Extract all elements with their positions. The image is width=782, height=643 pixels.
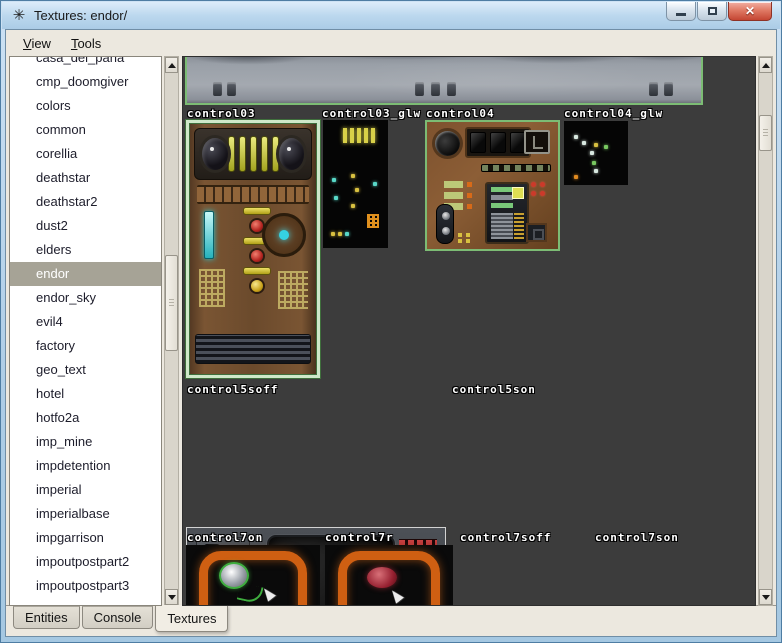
scroll-down-button[interactable]	[759, 589, 772, 605]
folder-item-factory[interactable]: factory	[10, 334, 161, 358]
indicator-bars	[228, 136, 279, 172]
glow-dot	[574, 175, 578, 179]
texture-label: control03	[187, 107, 256, 120]
menu-view[interactable]: View	[14, 33, 60, 54]
folder-item-evil4[interactable]: evil4	[10, 310, 161, 334]
tab-textures[interactable]: Textures	[155, 605, 228, 632]
texture-label: control5son	[452, 383, 536, 396]
port-capsule	[436, 204, 454, 244]
glow-dot	[332, 178, 336, 182]
texture-label: control7son	[595, 531, 679, 544]
arrow-up-icon	[762, 63, 770, 68]
rivet-mark	[447, 82, 456, 96]
arrow-down-icon	[762, 595, 770, 600]
dial-knob	[279, 138, 305, 170]
dot-grid	[278, 271, 308, 309]
segment-strip	[481, 164, 551, 172]
folder-item-geo_text[interactable]: geo_text	[10, 358, 161, 382]
glow-bars	[343, 128, 375, 143]
scrollbar-track[interactable]	[759, 73, 772, 589]
dial-knob	[202, 138, 228, 170]
window-controls: ✕	[666, 2, 772, 21]
dot-column	[514, 213, 524, 239]
glow-dot	[331, 232, 335, 236]
close-icon: ✕	[745, 4, 755, 18]
vent-grille	[195, 334, 311, 364]
folder-item-deathstar[interactable]: deathstar	[10, 166, 161, 190]
texture-tile-control03_glw[interactable]	[323, 120, 388, 248]
dot-grid	[199, 269, 225, 307]
texture-tile-control7r[interactable]	[325, 545, 453, 606]
folder-item-impgarrison[interactable]: impgarrison	[10, 526, 161, 550]
arrow-up-icon	[168, 63, 176, 68]
folder-item-imperialbase[interactable]: imperialbase	[10, 502, 161, 526]
folder-item-endor[interactable]: endor	[10, 262, 161, 286]
scroll-down-button[interactable]	[165, 589, 178, 605]
texture-tile-control04_glw[interactable]	[564, 121, 628, 185]
close-button[interactable]: ✕	[728, 2, 772, 21]
content-area: casa_del_pana cmp_doomgiver colors commo…	[6, 56, 776, 606]
folder-item-endor_sky[interactable]: endor_sky	[10, 286, 161, 310]
glow-dot	[604, 145, 608, 149]
folder-item-casa_del_pana[interactable]: casa_del_pana	[10, 56, 161, 70]
maximize-icon	[708, 7, 717, 15]
rivet-mark	[664, 82, 673, 96]
maximize-button[interactable]	[697, 2, 727, 21]
glow-dot	[351, 174, 355, 178]
scrollbar-thumb[interactable]	[165, 255, 178, 351]
folder-item-imp_mine[interactable]: imp_mine	[10, 430, 161, 454]
bottom-socket	[526, 223, 547, 242]
red-indicators	[531, 182, 545, 196]
titlebar[interactable]: ✳ Textures: endor/ ✕	[2, 2, 780, 29]
app-window: ✳ Textures: endor/ ✕ View Tools casa_del…	[0, 0, 782, 643]
client-area: View Tools casa_del_pana cmp_doomgiver c…	[5, 29, 777, 637]
cyan-gauge	[204, 211, 214, 259]
bottom-tab-bar: Entities Console Textures	[6, 606, 776, 636]
tab-entities[interactable]: Entities	[13, 606, 80, 629]
glow-dot	[594, 169, 598, 173]
rivet-mark	[415, 82, 424, 96]
texture-label: control7r	[325, 531, 394, 544]
yellow-button	[512, 187, 524, 199]
panel-middle	[196, 207, 310, 329]
texture-label: control04_glw	[564, 107, 663, 120]
folder-item-impoutpostpart2[interactable]: impoutpostpart2	[10, 550, 161, 574]
folder-list-inner: casa_del_pana cmp_doomgiver colors commo…	[10, 56, 161, 598]
rivet-mark	[649, 82, 658, 96]
glow-dot	[355, 188, 359, 192]
rivet-mark	[213, 82, 222, 96]
texture-tile-concrete-wall[interactable]	[185, 56, 703, 105]
folder-item-impoutpostpart3[interactable]: impoutpostpart3	[10, 574, 161, 598]
glow-dot	[351, 204, 355, 208]
folder-item-dust2[interactable]: dust2	[10, 214, 161, 238]
texture-label: control5soff	[187, 383, 278, 396]
folder-item-colors[interactable]: colors	[10, 94, 161, 118]
scrollbar-track[interactable]	[165, 73, 178, 589]
folder-item-impdetention[interactable]: impdetention	[10, 454, 161, 478]
folder-item-deathstar2[interactable]: deathstar2	[10, 190, 161, 214]
rivet-mark	[431, 82, 440, 96]
texture-label: control7soff	[460, 531, 551, 544]
window-title: Textures: endor/	[34, 8, 127, 23]
square-buttons	[465, 127, 531, 158]
texture-tile-control7on[interactable]	[186, 545, 320, 606]
glow-dot	[345, 232, 349, 236]
center-module	[485, 182, 529, 244]
glow-dot	[373, 182, 377, 186]
texture-label: control7on	[187, 531, 263, 544]
glow-dot	[574, 135, 578, 139]
round-plate	[262, 213, 306, 257]
folder-item-imperial[interactable]: imperial	[10, 478, 161, 502]
round-knob	[435, 131, 460, 156]
arrow-down-icon	[168, 595, 176, 600]
minimize-button[interactable]	[666, 2, 696, 21]
red-oval	[367, 567, 397, 588]
etched-block	[491, 213, 513, 239]
texture-label: control03_glw	[322, 107, 421, 120]
glow-dot	[338, 232, 342, 236]
panel-bezel	[194, 128, 312, 180]
menu-tools[interactable]: Tools	[62, 33, 110, 54]
texture-label: control04	[426, 107, 495, 120]
folder-item-corellia[interactable]: corellia	[10, 142, 161, 166]
folder-item-cmp_doomgiver[interactable]: cmp_doomgiver	[10, 70, 161, 94]
glow-cluster	[367, 214, 379, 228]
texture-tile-control03[interactable]	[186, 120, 320, 378]
glow-dot	[334, 196, 338, 200]
outline-button	[524, 130, 550, 154]
canvas-scrollbar[interactable]	[758, 56, 773, 606]
knob-row	[197, 185, 309, 204]
app-icon[interactable]: ✳	[10, 7, 28, 25]
glow-dot	[582, 141, 586, 145]
yellow-dots	[458, 233, 471, 243]
scroll-up-button[interactable]	[759, 57, 772, 73]
scrollbar-thumb[interactable]	[759, 115, 772, 151]
texture-tile-control04[interactable]	[425, 120, 560, 251]
folder-item-common[interactable]: common	[10, 118, 161, 142]
rivet-mark	[227, 82, 236, 96]
glow-dot	[592, 161, 596, 165]
folder-item-hotel[interactable]: hotel	[10, 382, 161, 406]
scroll-up-button[interactable]	[165, 57, 178, 73]
texture-canvas[interactable]: control03 control03_glw control04 contro…	[182, 56, 756, 606]
folder-item-hotfo2a[interactable]: hotfo2a	[10, 406, 161, 430]
glow-dot	[594, 143, 598, 147]
folder-list-scrollbar[interactable]	[164, 56, 179, 606]
menu-bar: View Tools	[6, 30, 776, 56]
minimize-icon	[676, 13, 686, 16]
folder-item-elders[interactable]: elders	[10, 238, 161, 262]
texture-folder-list: casa_del_pana cmp_doomgiver colors commo…	[9, 56, 162, 606]
tab-console[interactable]: Console	[82, 606, 154, 629]
glow-dot	[590, 151, 594, 155]
